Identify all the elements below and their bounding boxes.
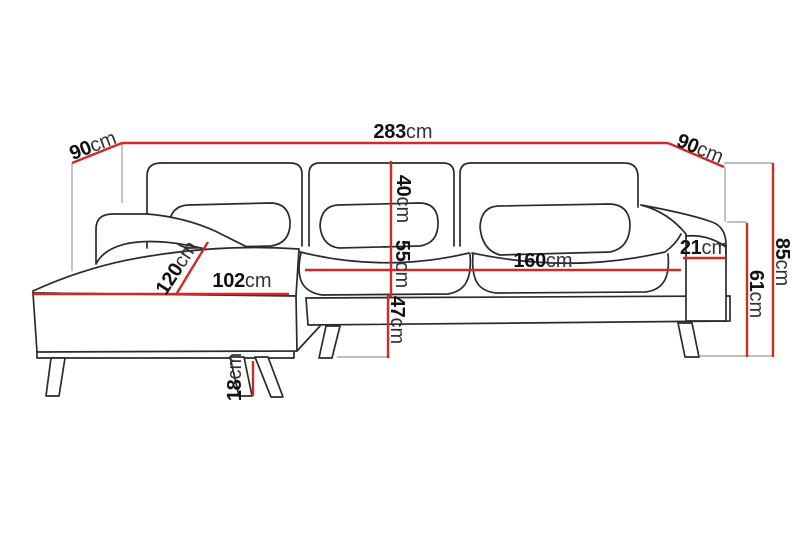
- dim-unit: cm: [546, 250, 573, 272]
- chaise-front-face: [33, 293, 297, 352]
- leg-sofa-right: [678, 323, 699, 357]
- dim-value: 85: [771, 238, 793, 260]
- dim-unit: cm: [745, 291, 767, 318]
- dim-unit: cm: [392, 196, 414, 223]
- dim-label-seat-height: 47cm: [387, 296, 407, 344]
- dim-unit: cm: [771, 259, 793, 286]
- dim-value: 283: [373, 121, 405, 143]
- dim-label-armrest-width: 21cm: [680, 238, 728, 258]
- dim-value: 21: [680, 237, 702, 259]
- sofa-dimension-diagram: 283cm 90cm 90cm 40cm 55cm 47cm 120cm 102…: [0, 0, 800, 533]
- dim-label-leg-height: 18cm: [225, 353, 245, 401]
- dim-label-chaise-width: 102cm: [212, 271, 271, 291]
- dim-unit: cm: [386, 317, 408, 344]
- dim-label-total-height: 85cm: [772, 238, 792, 286]
- dim-unit: cm: [245, 270, 272, 292]
- sofa-outline: [33, 163, 730, 397]
- armrest-right: [641, 205, 726, 321]
- dim-value: 61: [745, 270, 767, 292]
- dim-value: 18: [224, 380, 246, 402]
- pillow-middle: [320, 203, 438, 248]
- base-rail-bottom: [306, 296, 730, 325]
- dim-label-back-height: 40cm: [393, 175, 413, 223]
- dim-value: 40: [392, 175, 414, 197]
- dim-value: 160: [513, 250, 545, 272]
- leg-sofa-left: [319, 326, 340, 358]
- pillow-right: [480, 204, 630, 255]
- base-rail-top: [306, 296, 730, 298]
- seat-seam-middle: [300, 252, 469, 263]
- chaise-to-base-edge: [297, 326, 320, 351]
- dim-label-seat-mid-height: 55cm: [392, 240, 412, 288]
- dim-label-seat-width: 160cm: [513, 251, 572, 271]
- seat-front-middle: [299, 253, 470, 295]
- dim-value: 102: [212, 270, 244, 292]
- dim-label-total-width: 283cm: [373, 122, 432, 142]
- dim-unit: cm: [391, 261, 413, 288]
- dim-label-armrest-height: 61cm: [746, 270, 766, 318]
- dim-value: 47: [386, 296, 408, 318]
- leg-chaise-right-b: [255, 357, 283, 397]
- dim-unit: cm: [224, 353, 246, 380]
- dim-value: 55: [391, 240, 413, 262]
- dim-unit: cm: [701, 237, 728, 259]
- dim-unit: cm: [406, 121, 433, 143]
- leg-chaise-left: [46, 358, 65, 396]
